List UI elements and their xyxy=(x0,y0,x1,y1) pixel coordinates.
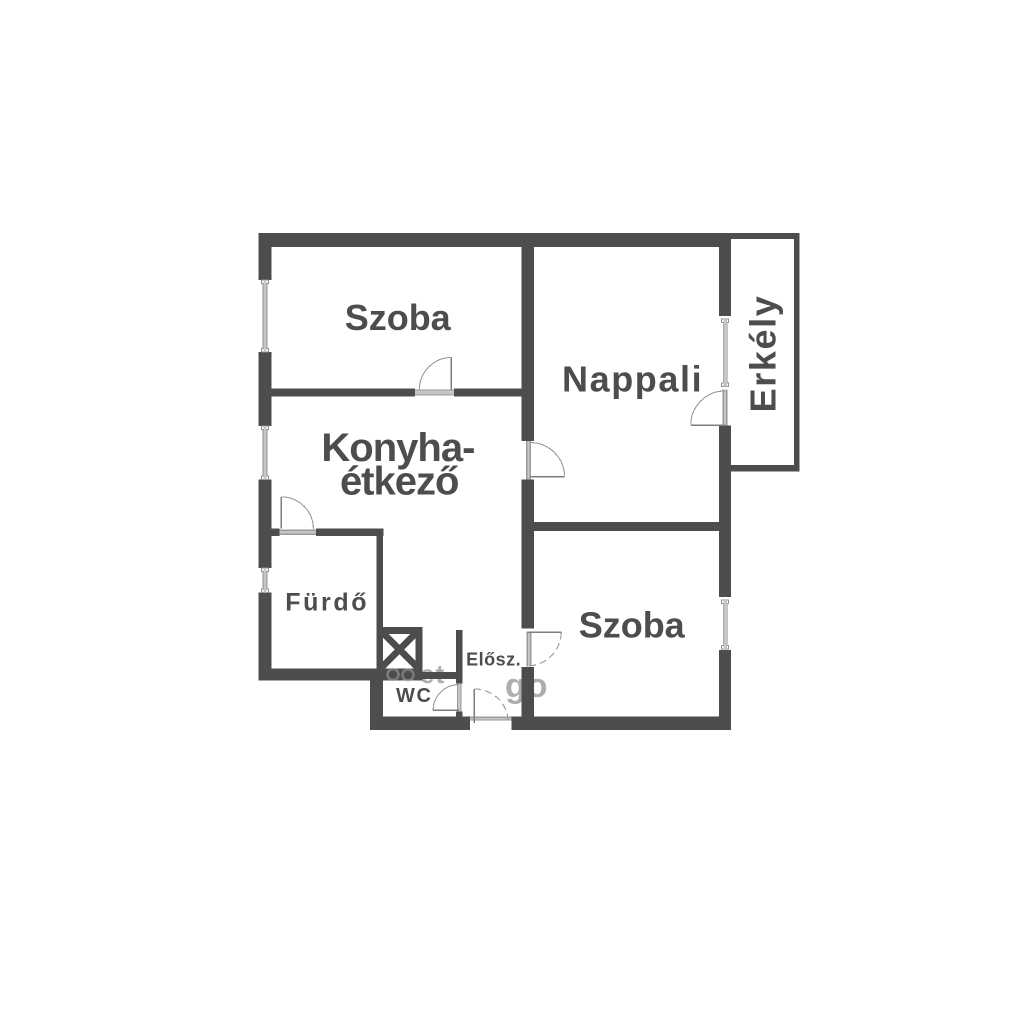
svg-text:Szoba: Szoba xyxy=(579,605,686,646)
svg-text:WC: WC xyxy=(396,685,433,707)
svg-text:Fürdő: Fürdő xyxy=(285,588,369,616)
svg-text:Erkély: Erkély xyxy=(743,295,784,413)
svg-text:Elősz.: Elősz. xyxy=(466,650,521,670)
svg-text:Nappali: Nappali xyxy=(562,359,703,400)
svg-text:go: go xyxy=(505,667,549,705)
svg-text:Szoba: Szoba xyxy=(345,297,452,338)
svg-text:étkező: étkező xyxy=(340,459,459,503)
